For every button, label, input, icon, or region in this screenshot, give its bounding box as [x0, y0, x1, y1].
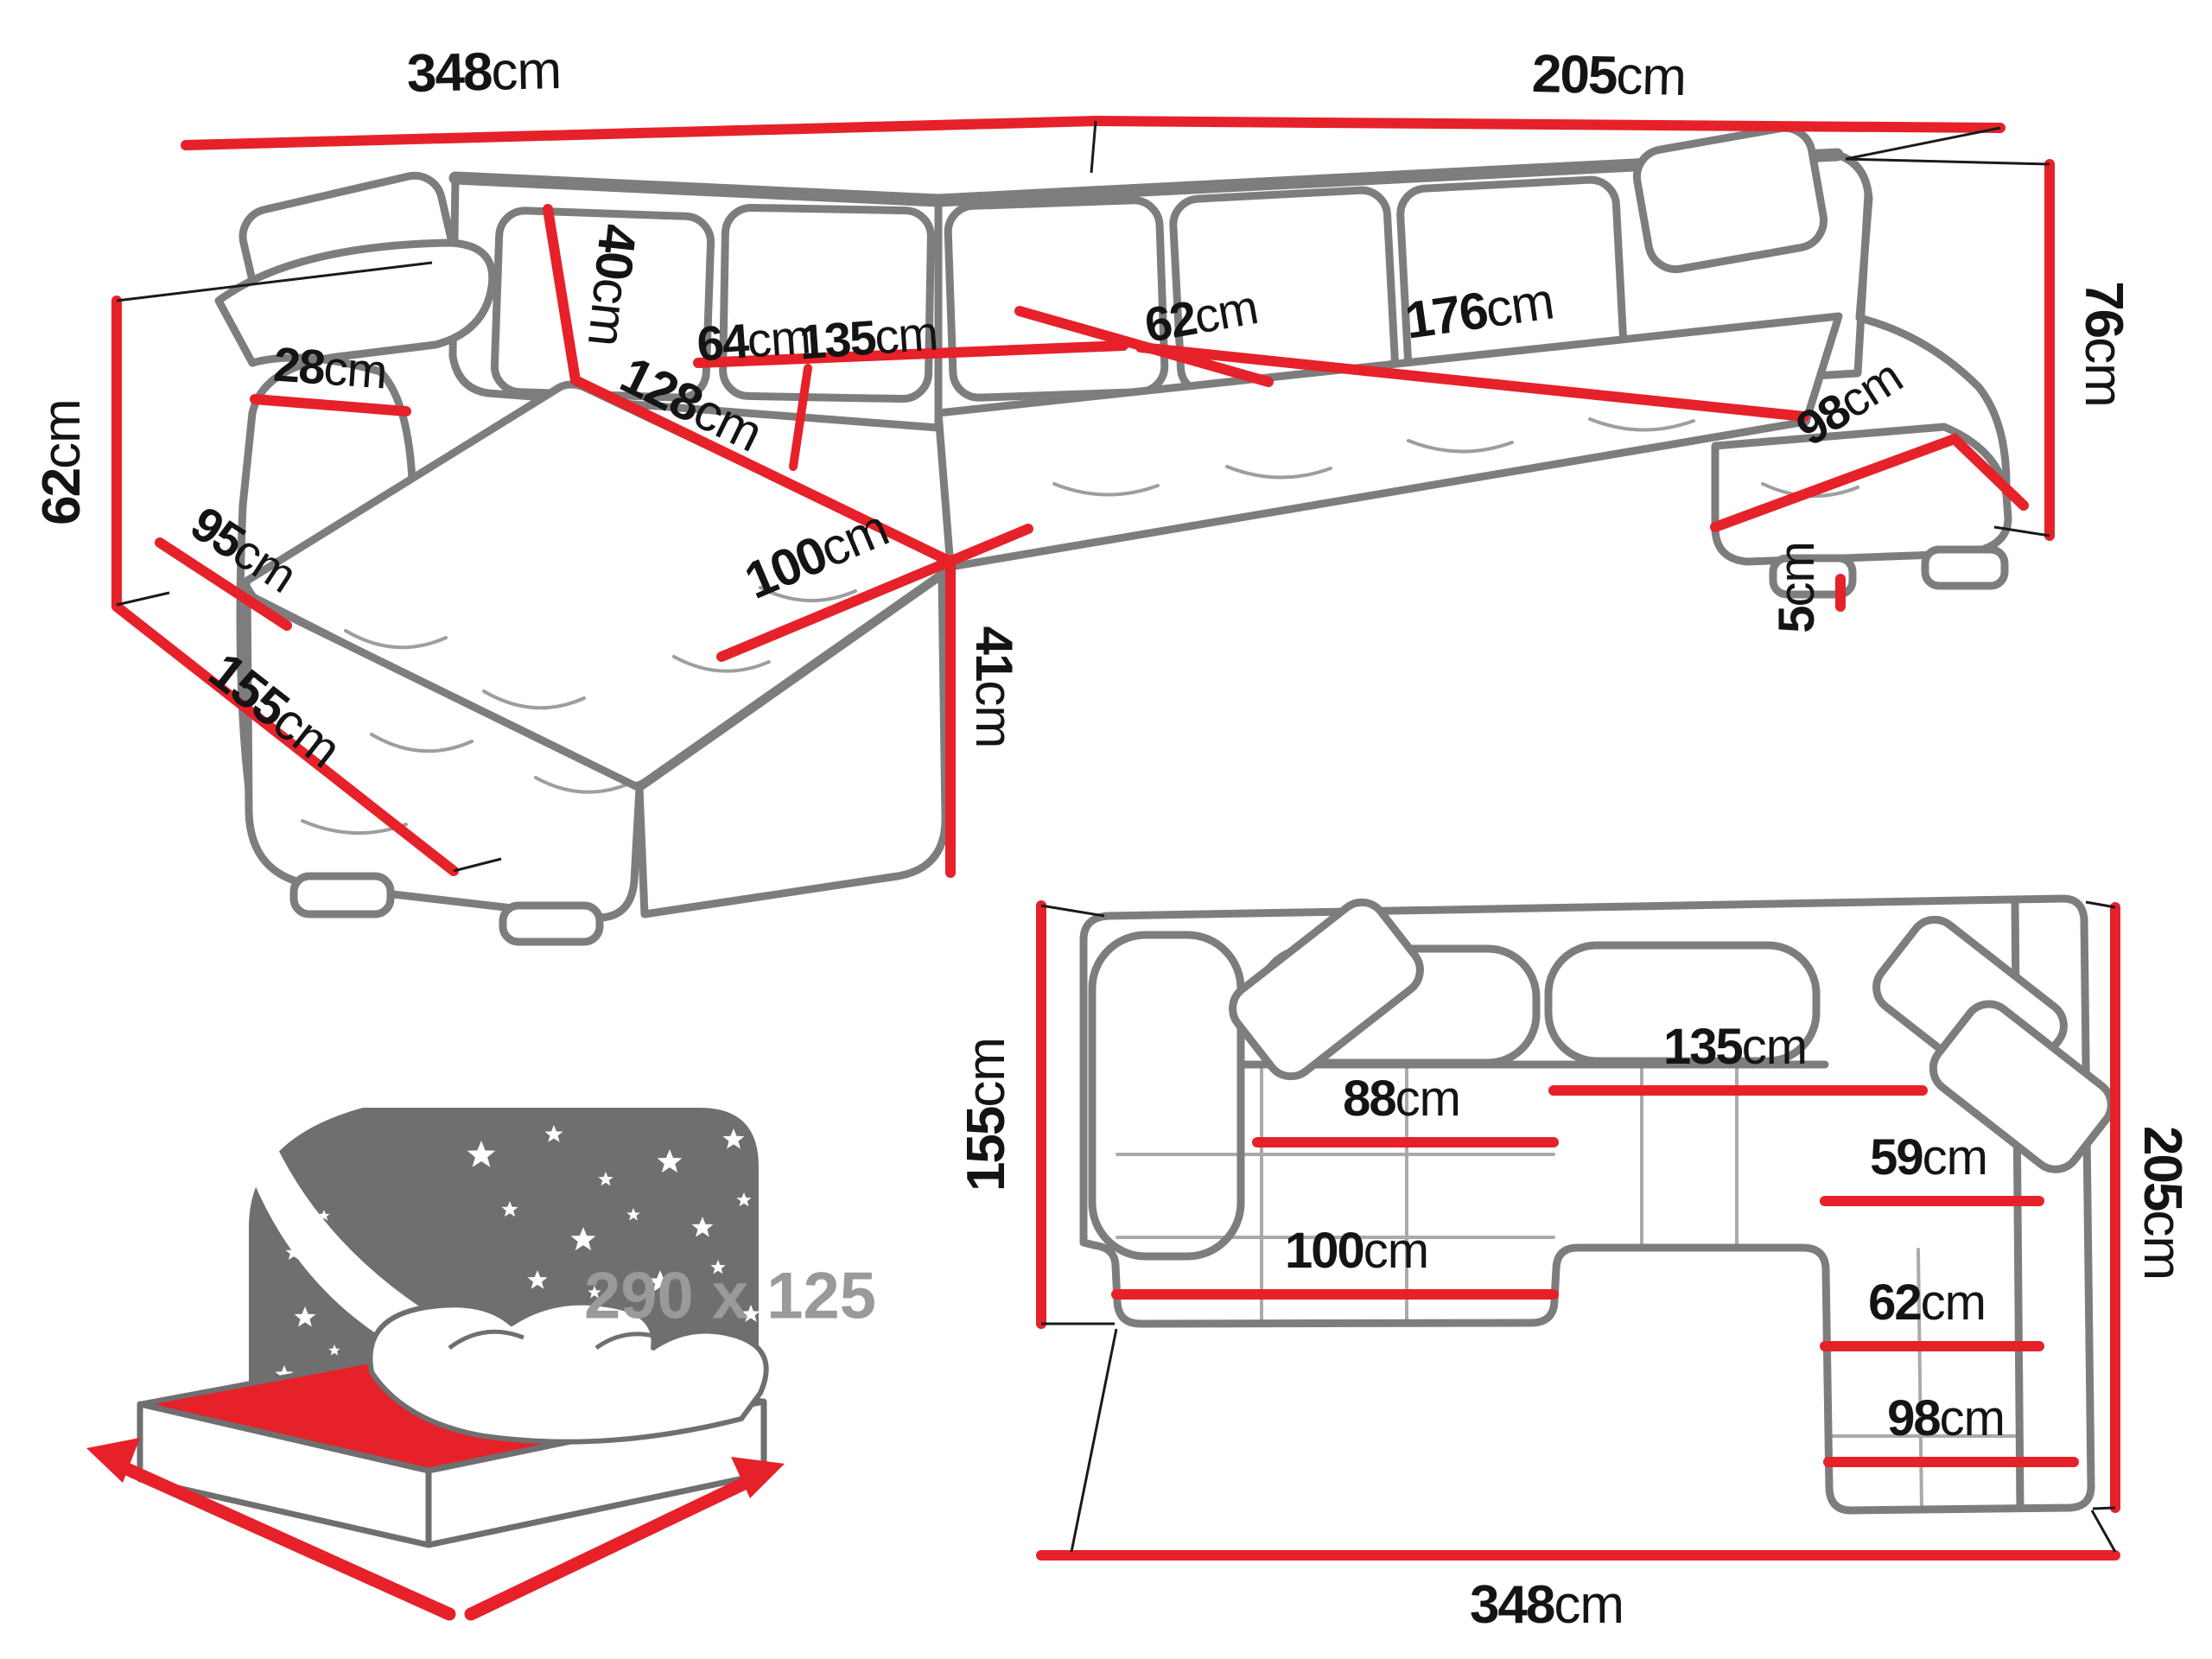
- dim-arm-height: 62cm: [35, 399, 89, 525]
- plan-dim-right-depth: 205cm: [2135, 1126, 2189, 1280]
- diagram-artwork: [0, 0, 2212, 1659]
- line-348: [186, 121, 1096, 145]
- line-205: [1096, 121, 2000, 128]
- perspective-sofa-drawing: [219, 124, 2008, 942]
- dim-seat-height: 41cm: [968, 626, 1020, 748]
- plan-dim-chaise-front-width: 100cm: [1285, 1226, 1428, 1276]
- dimension-diagram: 348cm 205cm 76cm 5cm 62cm 155cm 95cm 28c…: [0, 0, 2212, 1659]
- dim-seat-center-width: 135cm: [798, 308, 939, 366]
- dim-cushion-height: 40cm: [580, 222, 644, 348]
- sleeper-size-label: 290 x 125: [584, 1259, 876, 1334]
- dim-back-width: 348cm: [406, 44, 561, 101]
- sleep-function-icon: [86, 1096, 785, 1614]
- dim-leg-height: 5cm: [1772, 542, 1822, 633]
- dim-back-height: 76cm: [2076, 281, 2130, 407]
- plan-dim-chaise-width: 88cm: [1343, 1074, 1460, 1124]
- plan-dim-right-chaise-width: 98cm: [1887, 1394, 2005, 1444]
- plan-dim-total-width: 348cm: [1470, 1579, 1624, 1632]
- dim-arm-top-width: 28cm: [272, 340, 389, 397]
- plan-dim-corner-width: 59cm: [1870, 1133, 1987, 1183]
- plan-dim-left-depth: 155cm: [960, 1038, 1014, 1192]
- plan-dim-center-seat-width: 135cm: [1663, 1022, 1807, 1072]
- dim-right-length: 205cm: [1531, 48, 1686, 105]
- dim-seat-left-width: 64cm: [696, 313, 812, 369]
- plan-dim-right-seat-width: 62cm: [1868, 1278, 1986, 1328]
